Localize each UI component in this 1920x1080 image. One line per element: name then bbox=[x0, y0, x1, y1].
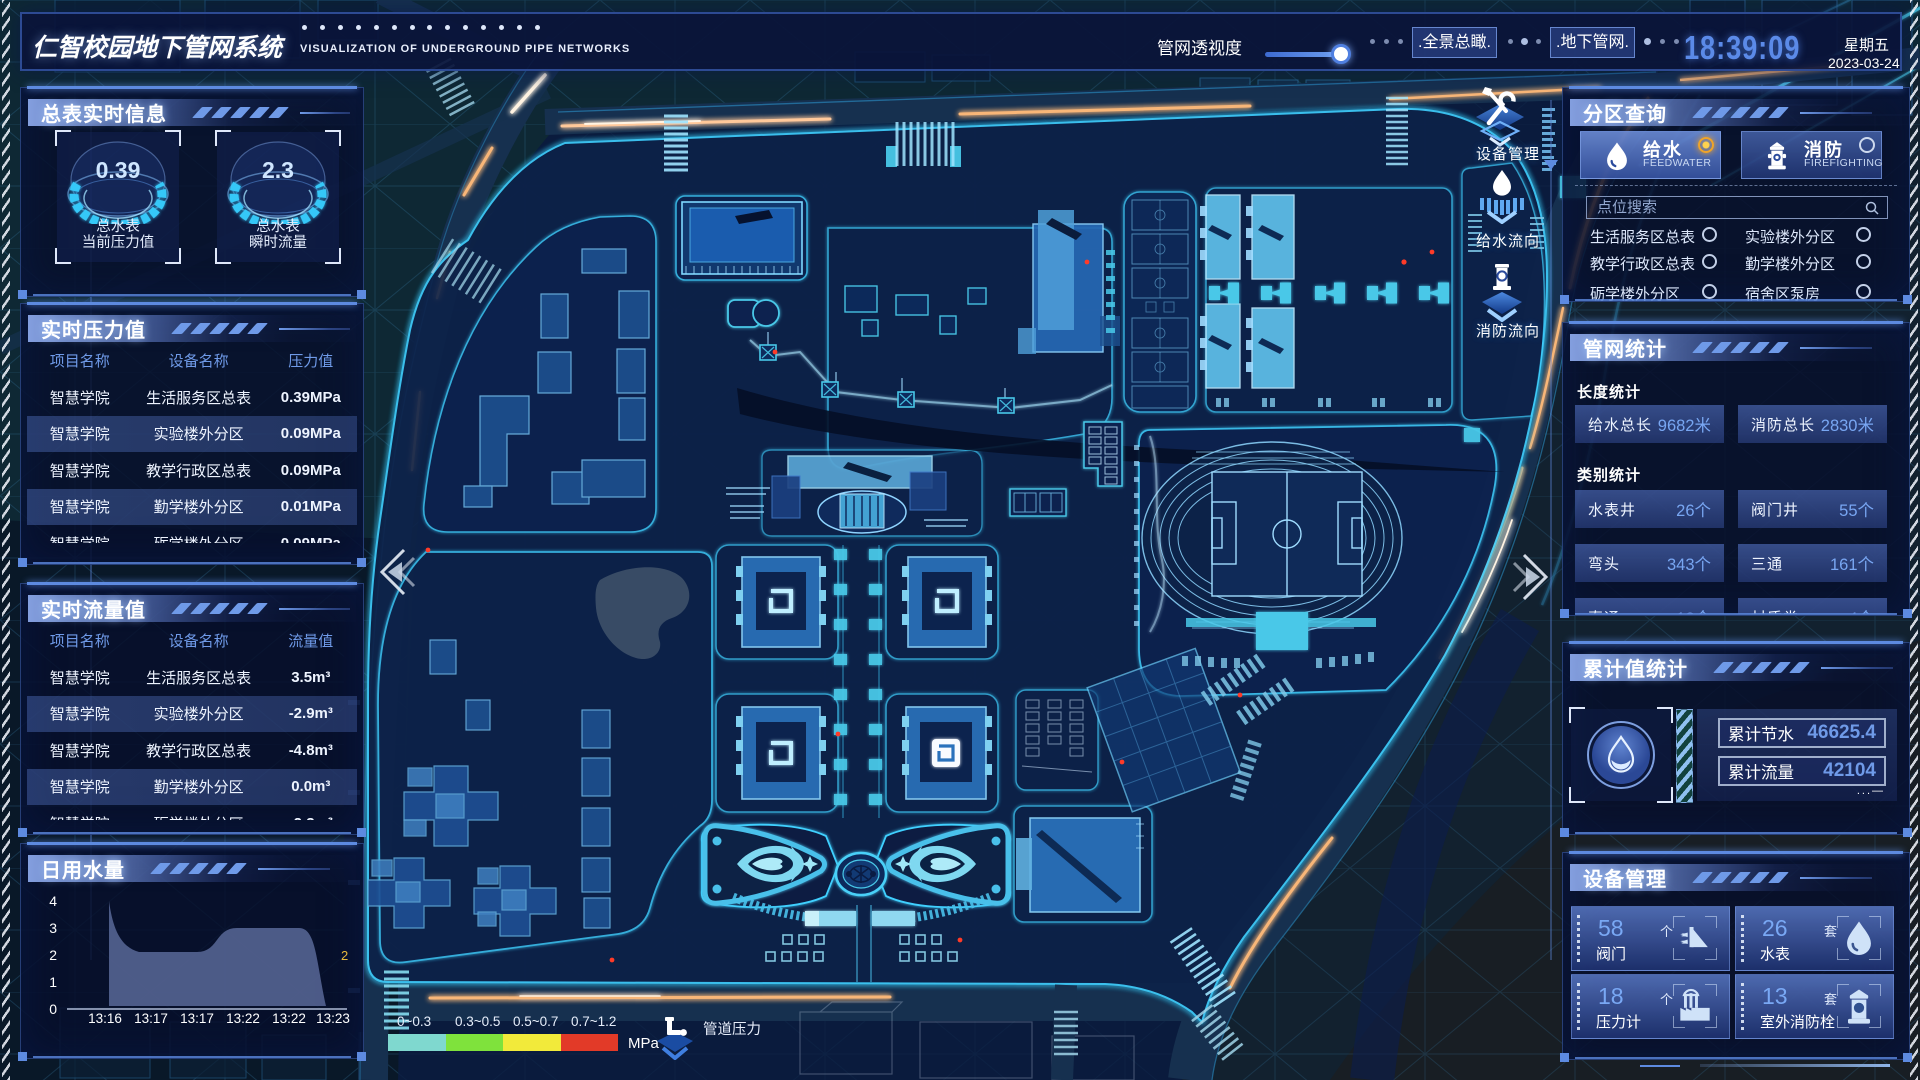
svg-text:13:23: 13:23 bbox=[316, 1011, 350, 1026]
svg-text:13:16: 13:16 bbox=[88, 1011, 122, 1026]
svg-text:0: 0 bbox=[49, 1001, 57, 1017]
svg-text:0.39: 0.39 bbox=[96, 157, 141, 183]
svg-text:13:17: 13:17 bbox=[180, 1011, 214, 1026]
svg-text:4: 4 bbox=[49, 893, 57, 909]
svg-text:3: 3 bbox=[49, 920, 57, 936]
svg-text:2.3: 2.3 bbox=[262, 157, 294, 183]
svg-text:1: 1 bbox=[49, 974, 57, 990]
svg-text:13:17: 13:17 bbox=[134, 1011, 168, 1026]
svg-text:2: 2 bbox=[341, 948, 348, 963]
svg-text:2: 2 bbox=[49, 947, 57, 963]
svg-text:13:22: 13:22 bbox=[226, 1011, 260, 1026]
svg-text:13:22: 13:22 bbox=[272, 1011, 306, 1026]
